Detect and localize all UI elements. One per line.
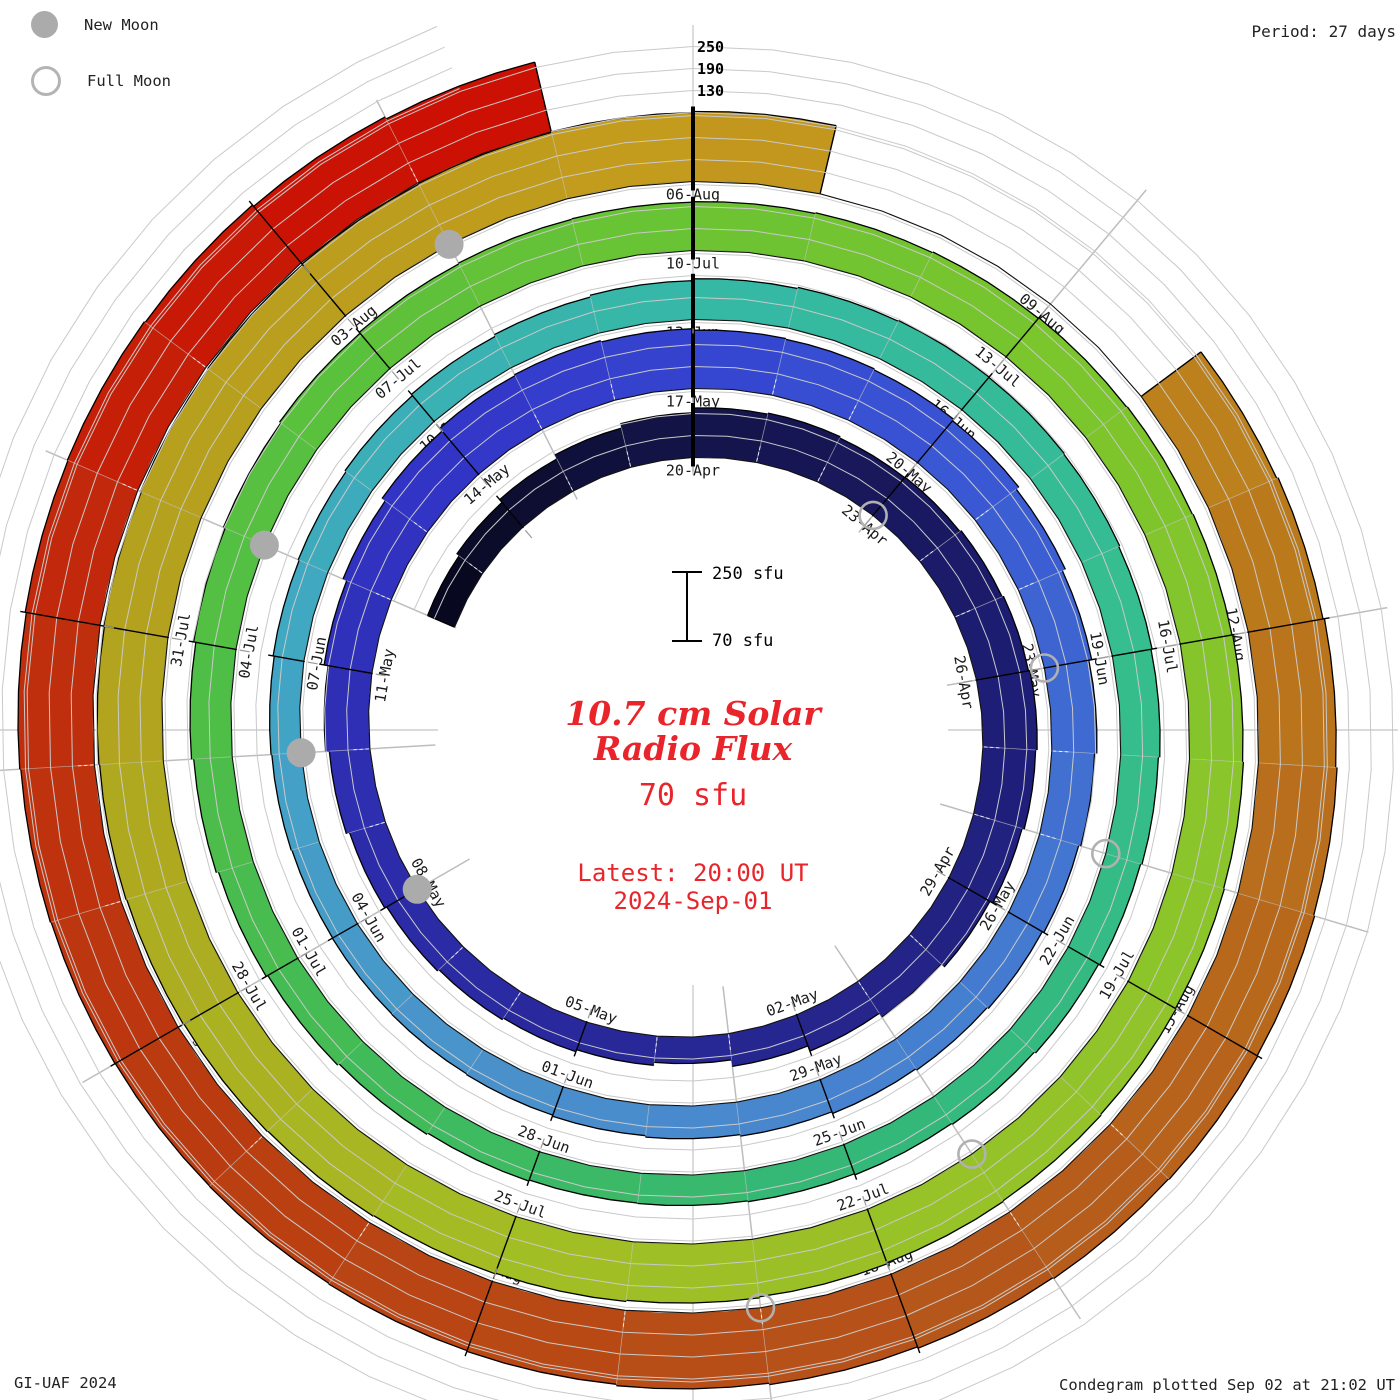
condegram-screenshot: 20-Apr23-Apr26-Apr29-Apr02-May05-May08-M… <box>0 0 1400 1400</box>
flux-bar <box>626 1239 759 1303</box>
flux-bar <box>804 213 933 297</box>
flux-bar <box>645 1102 740 1138</box>
flux-bar <box>1044 660 1096 753</box>
flux-bar <box>1106 755 1159 865</box>
flux-bar <box>219 862 298 977</box>
scale-bar <box>672 572 702 641</box>
full-moon-label: Full Moon <box>87 72 171 90</box>
flux-bar <box>577 1022 658 1065</box>
flux-bar <box>392 994 483 1074</box>
flux-bar <box>18 612 100 769</box>
flux-bar <box>459 219 584 306</box>
new-moon-label: New Moon <box>84 16 159 34</box>
legend-new-moon: New Moon <box>31 11 159 38</box>
scale-bar-min: 70 sfu <box>712 631 773 651</box>
new-moon-icon <box>31 11 58 38</box>
latest-line1: Latest: 20:00 UT <box>577 859 808 887</box>
svg-text:250: 250 <box>697 38 724 56</box>
flux-bar <box>1068 854 1140 965</box>
legend-full-moon: Full Moon <box>31 66 171 96</box>
scale-bar-max: 250 sfu <box>712 564 784 584</box>
new-moon-marker <box>287 738 316 767</box>
new-moon-marker <box>403 875 432 904</box>
chart-title: 10.7 cm Solar Radio Flux <box>565 696 821 766</box>
new-moon-marker <box>250 531 279 560</box>
svg-text:130: 130 <box>697 82 724 100</box>
flux-bar <box>820 1039 916 1114</box>
plotted-timestamp: Condegram plotted Sep 02 at 21:02 UT <box>1059 1376 1395 1394</box>
flux-bar <box>844 1097 952 1175</box>
flux-bar <box>693 330 786 395</box>
credit-label: GI-UAF 2024 <box>14 1374 117 1392</box>
full-moon-icon <box>31 66 61 96</box>
latest-line2: 2024-Sep-01 <box>577 887 808 915</box>
flux-bar <box>638 1171 748 1206</box>
period-label: Period: 27 days <box>1252 22 1397 41</box>
chart-title-line2: Radio Flux <box>565 731 821 766</box>
flux-bar <box>339 1042 445 1135</box>
latest-timestamp: Latest: 20:00 UT 2024-Sep-01 <box>577 859 808 915</box>
chart-title-line1: 10.7 cm Solar <box>565 696 821 731</box>
radial-axis-labels: 250190130 <box>697 38 724 100</box>
svg-text:190: 190 <box>697 60 724 78</box>
flux-bar <box>693 112 836 194</box>
flux-value-label: 70 sfu <box>639 778 747 813</box>
flux-bar <box>693 408 768 463</box>
new-moon-marker <box>435 230 464 259</box>
flux-bar <box>97 626 168 764</box>
flux-bar <box>977 671 1038 750</box>
